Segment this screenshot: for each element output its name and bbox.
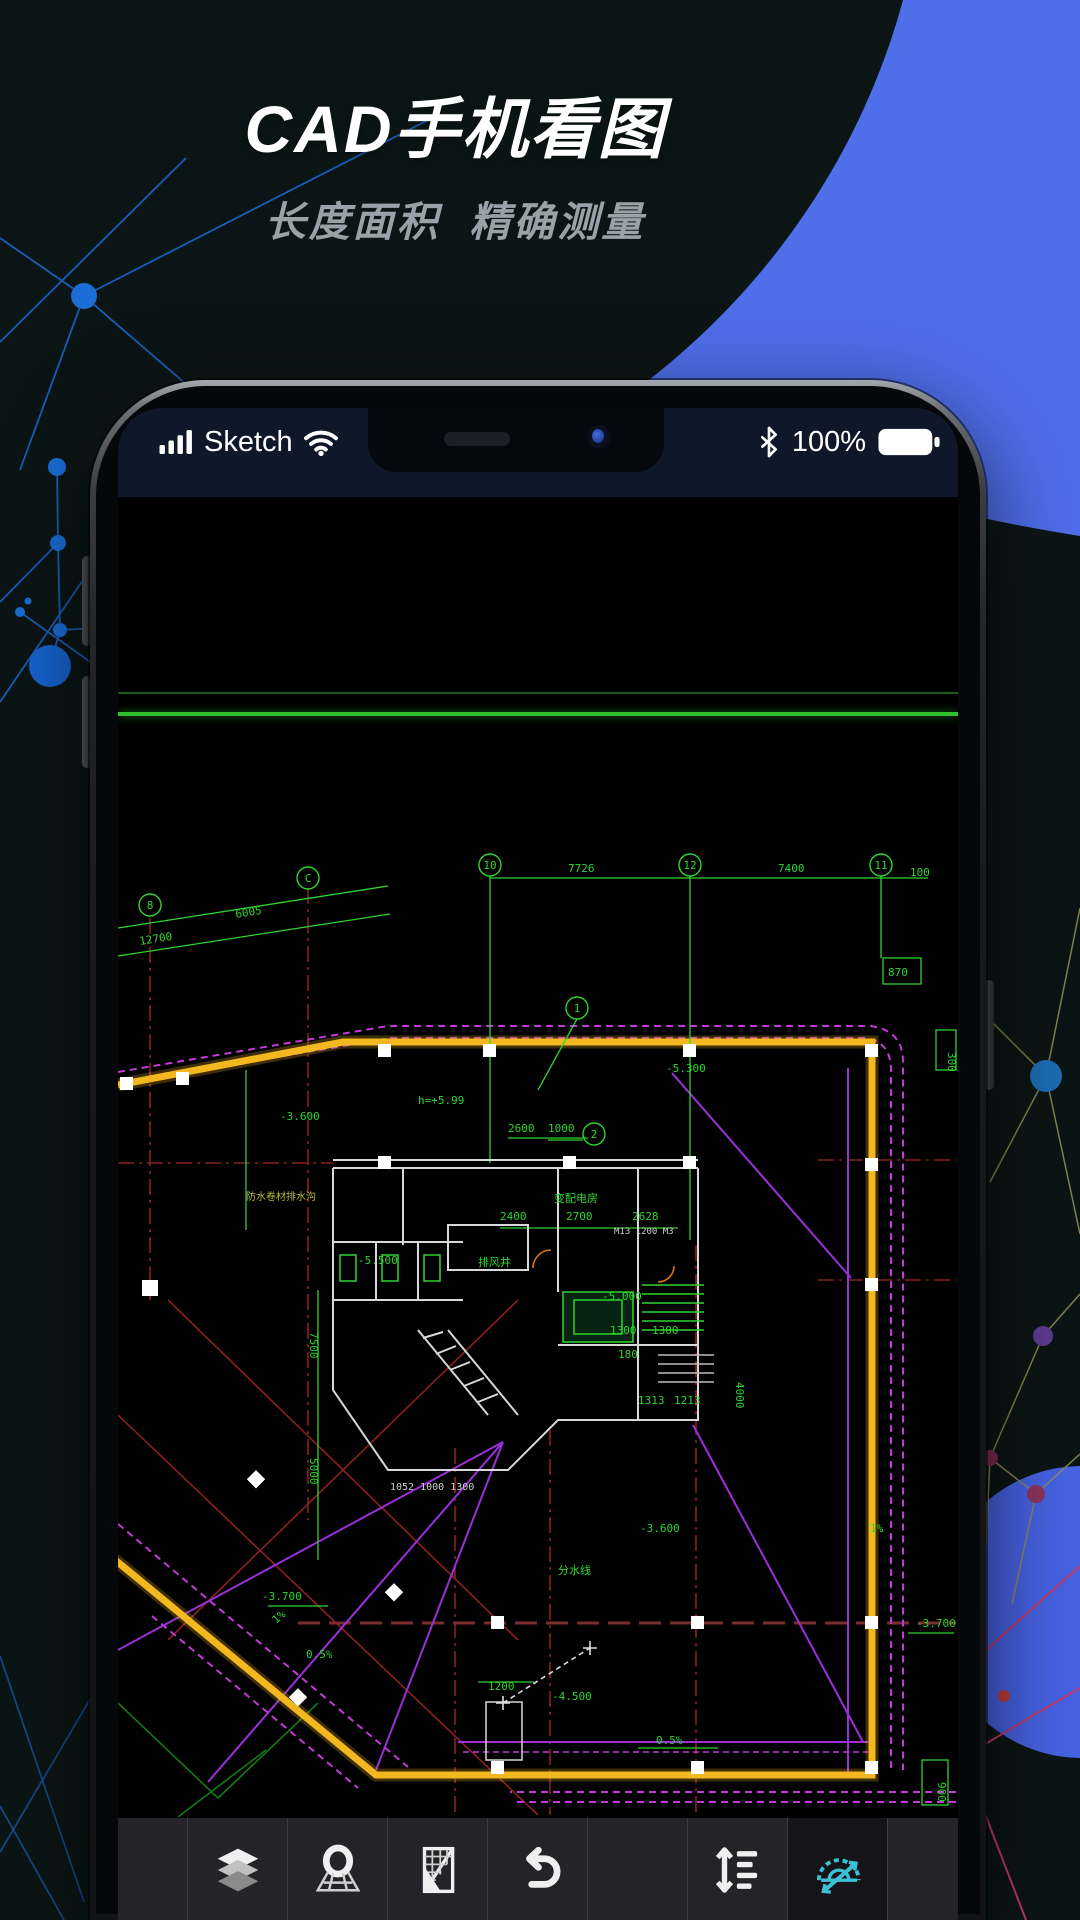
svg-text:-5.000: -5.000: [602, 1290, 642, 1303]
cad-green-v: [118, 1703, 318, 1817]
battery-percent: 100%: [792, 426, 866, 459]
svg-text:变配电房: 变配电房: [554, 1191, 598, 1205]
cad-annotations: 7726 7400 100 12700 6005 870 h=+5.99 -3.…: [138, 862, 958, 1802]
cad-purple-lines: [118, 1068, 868, 1782]
notch: [368, 408, 664, 472]
cad-yellow-boundary: [118, 1042, 872, 1775]
hero: CAD手机看图 长度面积 精确测量: [0, 96, 910, 248]
ruler-button[interactable]: [388, 1818, 488, 1920]
svg-text:-3.700: -3.700: [916, 1617, 956, 1630]
svg-text:1300: 1300: [610, 1324, 637, 1337]
scale-ruler-icon: [411, 1843, 465, 1897]
svg-text:-3.700: -3.700: [262, 1590, 302, 1603]
svg-text:h=+5.99: h=+5.99: [418, 1094, 464, 1107]
layers-button[interactable]: [188, 1818, 288, 1920]
svg-text:300: 300: [945, 1052, 958, 1072]
svg-text:1300: 1300: [652, 1324, 679, 1337]
cad-grid-red: [118, 888, 956, 1815]
svg-text:排风井: 排风井: [478, 1255, 511, 1269]
cad-building-walls: [333, 1160, 698, 1760]
svg-text:12700: 12700: [138, 930, 173, 948]
toolbar-empty-cell: [588, 1818, 688, 1920]
svg-text:10: 10: [483, 859, 496, 872]
svg-text:1: 1: [574, 1002, 581, 1015]
svg-text:12: 12: [683, 859, 696, 872]
svg-text:2600: 2600: [508, 1122, 535, 1135]
svg-text:7726: 7726: [568, 862, 595, 875]
svg-text:1%: 1%: [270, 1608, 289, 1627]
toolbar-trail: [888, 1818, 958, 1920]
svg-text:0.5%: 0.5%: [306, 1648, 333, 1661]
svg-text:-3.600: -3.600: [280, 1110, 320, 1123]
svg-text:8: 8: [147, 899, 154, 912]
locate-button[interactable]: [288, 1818, 388, 1920]
svg-text:6005: 6005: [234, 904, 262, 921]
svg-text:-5.300: -5.300: [666, 1062, 706, 1075]
svg-text:4000: 4000: [733, 1382, 746, 1409]
hero-subtitle: 长度面积 精确测量: [0, 188, 910, 248]
bluetooth-icon: [756, 426, 782, 458]
svg-text:M13 1200 M3: M13 1200 M3: [614, 1227, 674, 1237]
protractor-icon: [811, 1843, 865, 1897]
pink-dot: [998, 1690, 1010, 1702]
svg-text:0.5%: 0.5%: [656, 1734, 683, 1747]
cad-door-arcs: [533, 1250, 674, 1282]
svg-text:1313: 1313: [638, 1394, 665, 1407]
svg-text:900: 900: [935, 1782, 948, 1802]
svg-text:100: 100: [910, 866, 930, 879]
svg-text:7500: 7500: [307, 1332, 320, 1359]
promo-page: CAD手机看图 长度面积 精确测量 Sketch: [0, 0, 1080, 1920]
svg-text:1%: 1%: [870, 1522, 884, 1535]
left-blue-circle: [29, 645, 71, 687]
cad-toolbar: [118, 1817, 958, 1920]
cad-grid-bubbles: 8 C 10 12 11 1 2: [139, 854, 892, 1145]
undo-icon: [511, 1843, 565, 1897]
svg-text:防水卷材排水沟: 防水卷材排水沟: [246, 1190, 316, 1203]
svg-text:1000: 1000: [548, 1122, 575, 1135]
svg-text:-3.600: -3.600: [640, 1522, 680, 1535]
wifi-icon: [303, 427, 339, 457]
front-camera: [586, 424, 612, 450]
svg-text:分水线: 分水线: [558, 1563, 591, 1577]
cad-magenta-dashed: [118, 1026, 956, 1802]
green-reference-line-dim: [118, 692, 958, 694]
svg-text:2700: 2700: [566, 1210, 593, 1223]
svg-text:5000: 5000: [307, 1458, 320, 1485]
toolbar-spacer: [118, 1818, 188, 1920]
line-spacing-icon: [711, 1843, 765, 1897]
svg-text:180: 180: [618, 1348, 638, 1361]
svg-text:11: 11: [874, 859, 887, 872]
spacing-button[interactable]: [688, 1818, 788, 1920]
right-network-dots: [982, 1060, 1062, 1503]
phone-mockup: Sketch 100%: [90, 380, 986, 1920]
battery-icon: [876, 426, 942, 458]
svg-text:870: 870: [888, 966, 908, 979]
speaker: [444, 432, 510, 446]
hero-title: CAD手机看图: [0, 96, 910, 162]
svg-text:1213: 1213: [674, 1394, 701, 1407]
svg-text:7400: 7400: [778, 862, 805, 875]
cad-green-fixtures: [340, 1255, 714, 1382]
phone-screen: Sketch 100%: [118, 408, 958, 1920]
phone-bezel: Sketch 100%: [96, 386, 980, 1914]
svg-text:1052 1000 1300: 1052 1000 1300: [390, 1482, 474, 1493]
locate-grid-icon: [311, 1843, 365, 1897]
undo-button[interactable]: [488, 1818, 588, 1920]
cad-canvas[interactable]: 8 C 10 12 11 1 2 7726 7400 100 12700: [118, 830, 958, 1817]
svg-text:2: 2: [591, 1128, 598, 1141]
svg-text:-4.500: -4.500: [552, 1690, 592, 1703]
svg-text:-5.500: -5.500: [358, 1254, 398, 1267]
green-reference-line: [118, 712, 958, 716]
svg-text:1200: 1200: [488, 1680, 515, 1693]
signal-icon: [158, 427, 194, 457]
svg-text:2400: 2400: [500, 1210, 527, 1223]
cad-yellow-glow: [118, 1042, 872, 1775]
layers-icon: [211, 1843, 265, 1897]
svg-text:C: C: [305, 872, 312, 885]
svg-text:2628: 2628: [632, 1210, 659, 1223]
protractor-button[interactable]: [788, 1818, 888, 1920]
carrier-label: Sketch: [204, 426, 293, 459]
